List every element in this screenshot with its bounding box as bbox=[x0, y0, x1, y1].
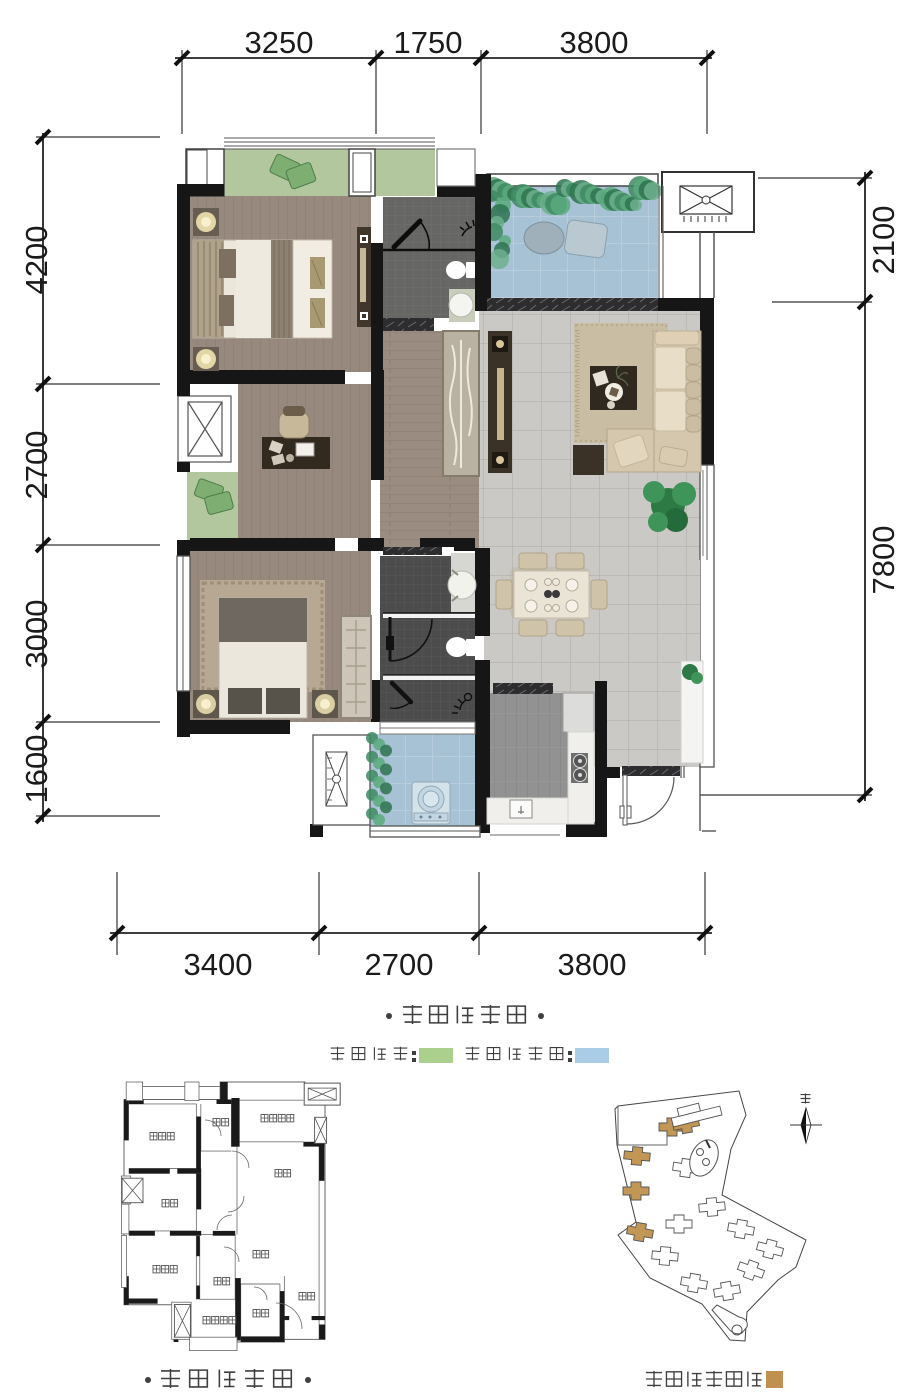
svg-text:2700: 2700 bbox=[365, 947, 434, 982]
svg-text:3000: 3000 bbox=[19, 600, 54, 669]
svg-text:7800: 7800 bbox=[866, 526, 901, 595]
svg-text:1750: 1750 bbox=[394, 25, 463, 60]
svg-text:1600: 1600 bbox=[19, 735, 54, 804]
svg-text:4200: 4200 bbox=[19, 226, 54, 295]
svg-text:3800: 3800 bbox=[558, 947, 627, 982]
svg-text:3800: 3800 bbox=[560, 25, 629, 60]
svg-text:2700: 2700 bbox=[19, 431, 54, 500]
svg-text:3250: 3250 bbox=[245, 25, 314, 60]
svg-text:2100: 2100 bbox=[866, 206, 901, 275]
svg-text:3400: 3400 bbox=[184, 947, 253, 982]
